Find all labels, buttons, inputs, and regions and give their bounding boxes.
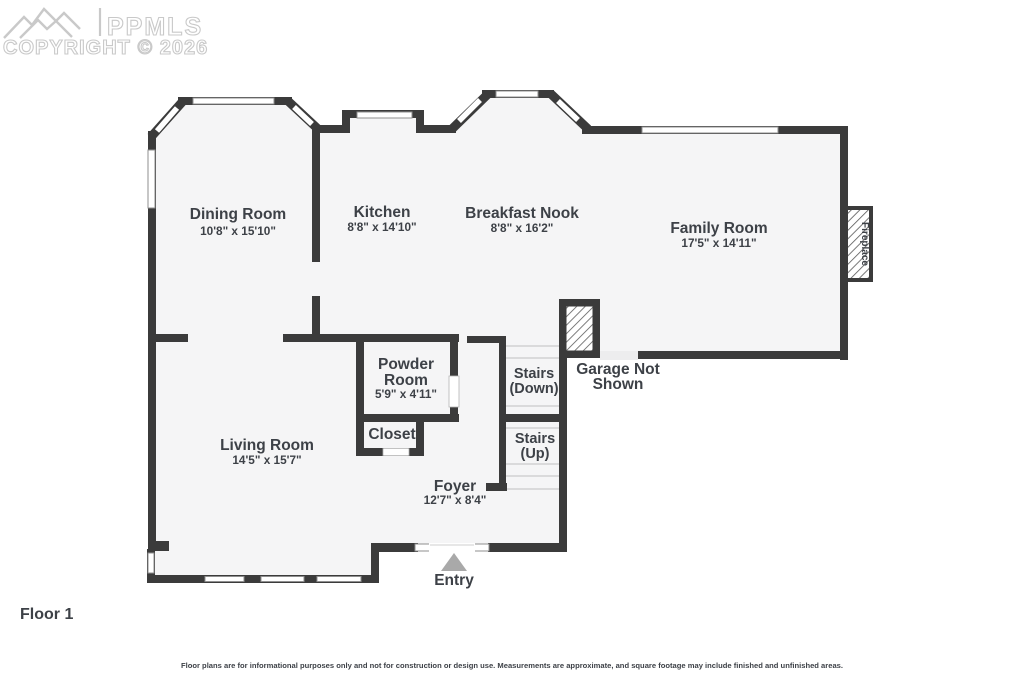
entry-label: Entry [434, 572, 474, 589]
breakfast-nook-dims: 8'8" x 16'2" [491, 221, 554, 235]
family-room-dims: 17'5" x 14'11" [681, 236, 756, 250]
stairs-down-label-line2: (Down) [509, 381, 558, 397]
hatched-wall-block [566, 306, 593, 351]
entry-arrow-icon [441, 553, 467, 571]
floor-plan-svg: PPMLS COPYRIGHT © 2026 [0, 0, 1024, 682]
floorplan-page: PPMLS COPYRIGHT © 2026 [0, 0, 1024, 682]
foyer-dims: 12'7" x 8'4" [424, 493, 487, 507]
stairs-up-label-line2: (Up) [521, 446, 550, 462]
family-room-label: Family Room [670, 220, 767, 237]
entry-door-opening [429, 543, 475, 552]
floor-number-label: Floor 1 [20, 606, 73, 623]
fireplace-label: Fireplace [859, 222, 870, 266]
kitchen-dims: 8'8" x 14'10" [347, 220, 416, 234]
powder-room-dims: 5'9" x 4'11" [375, 387, 437, 401]
stairs-down-label-line1: Stairs [514, 366, 554, 382]
powder-room-label-line1: Powder [378, 356, 434, 373]
watermark-copyright-text: COPYRIGHT © 2026 [3, 37, 208, 59]
kitchen-label: Kitchen [354, 204, 411, 221]
breakfast-nook-label: Breakfast Nook [465, 205, 579, 222]
closet-label: Closet [368, 426, 415, 443]
living-room-dims: 14'5" x 15'7" [232, 453, 301, 467]
garage-note-line2: Shown [593, 376, 644, 393]
dining-room-label: Dining Room [190, 206, 286, 223]
ppmls-watermark-logo: PPMLS COPYRIGHT © 2026 [3, 8, 208, 59]
doorway-opening [600, 351, 638, 360]
disclaimer-text: Floor plans are for informational purpos… [181, 661, 843, 670]
living-room-label: Living Room [220, 437, 314, 454]
dining-room-dims: 10'8" x 15'10" [200, 224, 276, 238]
stairs-up-label-line1: Stairs [515, 431, 555, 447]
mountain-icon [20, 20, 72, 38]
fireplace: Fireplace [844, 206, 873, 282]
